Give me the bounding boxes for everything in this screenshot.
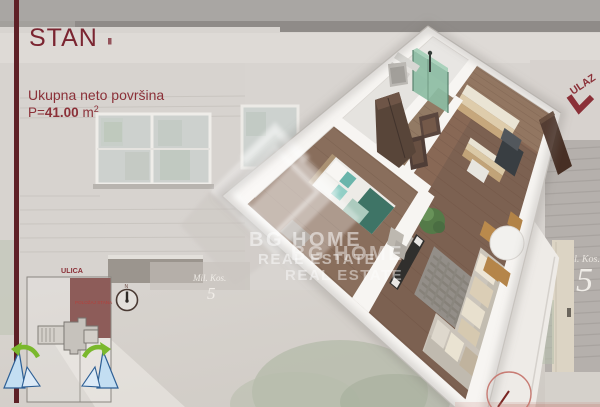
svg-text:P=41.00 m2: P=41.00 m2	[28, 104, 99, 120]
svg-text:ULICA: ULICA	[61, 266, 83, 275]
svg-text:POLOŽAJ STANA: POLOŽAJ STANA	[75, 298, 113, 305]
svg-text:Mil. Kos.: Mil. Kos.	[192, 273, 226, 283]
svg-text:5: 5	[576, 262, 593, 299]
svg-text:STAN: STAN	[29, 24, 98, 52]
svg-text:N: N	[125, 284, 129, 290]
svg-text:REAL ESTATE: REAL ESTATE	[285, 267, 403, 284]
svg-text:5: 5	[207, 284, 216, 303]
svg-text:Ukupna neto površina: Ukupna neto površina	[28, 87, 164, 103]
svg-text:REAL ESTATE: REAL ESTATE	[258, 251, 376, 268]
